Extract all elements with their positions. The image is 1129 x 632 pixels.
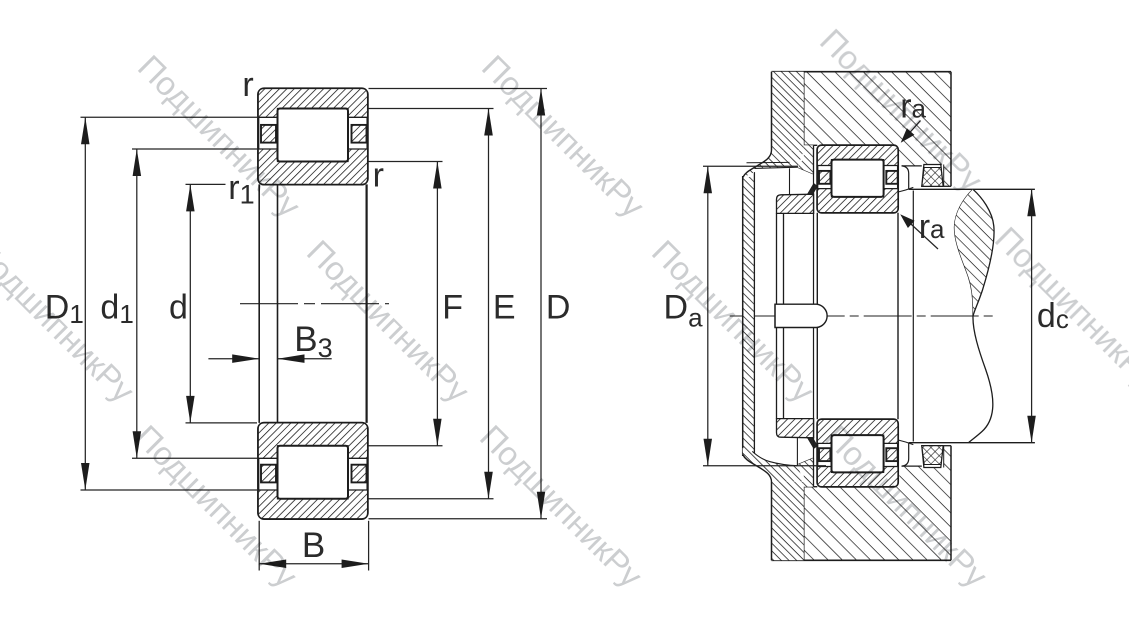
svg-text:D: D bbox=[546, 289, 571, 327]
svg-text:ra: ra bbox=[919, 208, 945, 246]
svg-text:E: E bbox=[493, 289, 516, 327]
svg-text:r: r bbox=[373, 156, 384, 194]
svg-text:d: d bbox=[169, 289, 188, 327]
svg-text:r: r bbox=[242, 66, 253, 104]
svg-text:F: F bbox=[442, 289, 463, 327]
svg-text:B: B bbox=[302, 526, 325, 565]
